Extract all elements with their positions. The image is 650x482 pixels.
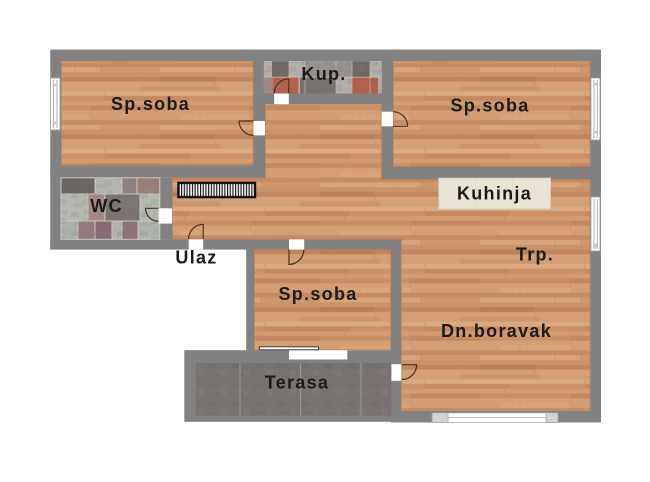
svg-text:Dn.boravak: Dn.boravak: [441, 321, 552, 341]
svg-text:Sp.soba: Sp.soba: [278, 284, 357, 304]
svg-text:Kuhinja: Kuhinja: [457, 184, 532, 204]
svg-text:Terasa: Terasa: [265, 373, 330, 393]
svg-text:Ulaz: Ulaz: [175, 248, 217, 268]
svg-text:WC: WC: [90, 196, 123, 216]
svg-text:Sp.soba: Sp.soba: [111, 94, 190, 114]
svg-text:Kup.: Kup.: [301, 64, 346, 84]
svg-text:Sp.soba: Sp.soba: [450, 95, 529, 115]
svg-text:Trp.: Trp.: [516, 245, 554, 265]
